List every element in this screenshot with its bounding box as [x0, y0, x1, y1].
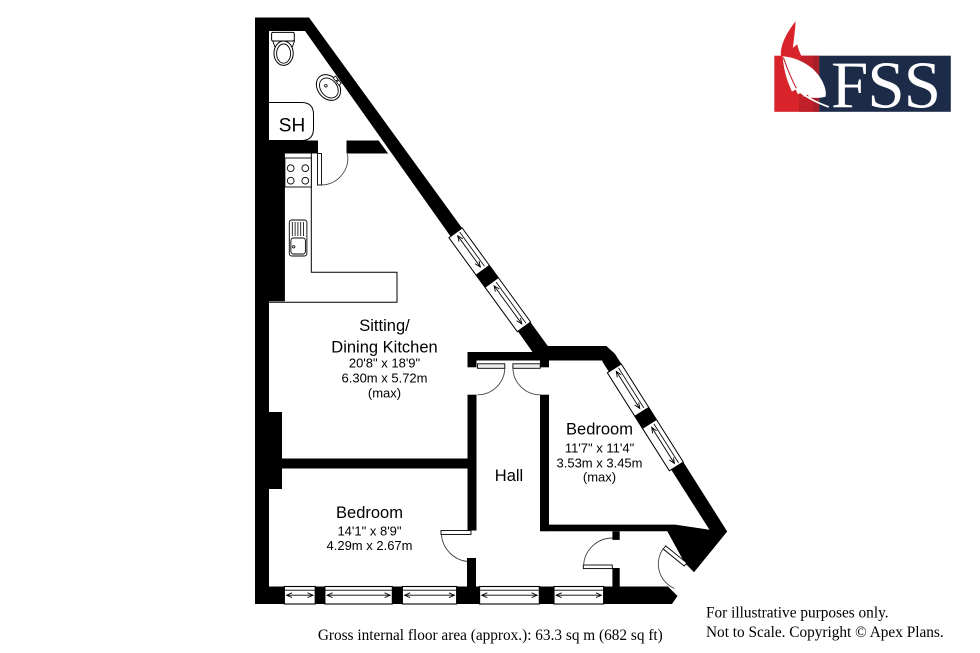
svg-text:FSS: FSS	[831, 48, 940, 122]
svg-text:Not to Scale. Copyright © Apex: Not to Scale. Copyright © Apex Plans.	[706, 624, 944, 641]
svg-text:11'7" x 11'4": 11'7" x 11'4"	[565, 441, 635, 456]
svg-text:Gross internal floor area (app: Gross internal floor area (approx.): 63.…	[318, 627, 663, 644]
svg-text:Dining Kitchen: Dining Kitchen	[331, 338, 437, 356]
svg-text:Hall: Hall	[495, 467, 523, 485]
svg-text:3.53m x 3.45m: 3.53m x 3.45m	[557, 456, 643, 471]
svg-text:6.30m x 5.72m: 6.30m x 5.72m	[342, 371, 428, 386]
svg-text:4.29m x 2.67m: 4.29m x 2.67m	[327, 538, 413, 553]
svg-text:Sitting/: Sitting/	[359, 317, 410, 335]
svg-text:(max): (max)	[368, 386, 401, 401]
svg-text:For illustrative purposes only: For illustrative purposes only.	[706, 605, 889, 622]
svg-text:SH: SH	[279, 116, 305, 137]
svg-text:Bedroom: Bedroom	[336, 504, 403, 522]
svg-text:14'1" x 8'9": 14'1" x 8'9"	[337, 523, 401, 538]
svg-text:20'8" x 18'9": 20'8" x 18'9"	[349, 355, 421, 370]
svg-text:(max): (max)	[583, 469, 616, 484]
svg-text:Bedroom: Bedroom	[566, 421, 633, 439]
